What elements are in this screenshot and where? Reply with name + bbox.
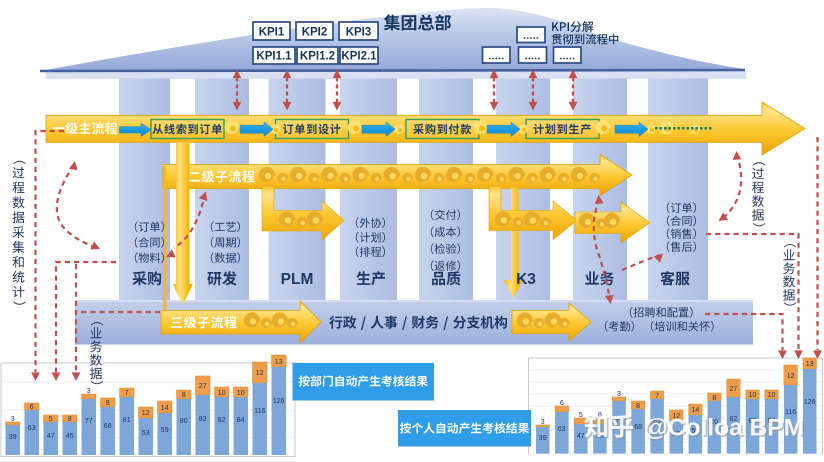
svg-text:14: 14 bbox=[161, 405, 169, 412]
svg-text:68: 68 bbox=[634, 424, 642, 431]
svg-text:KPI1.1: KPI1.1 bbox=[256, 51, 292, 63]
svg-text:KPI3: KPI3 bbox=[346, 27, 372, 39]
svg-text:8: 8 bbox=[712, 395, 716, 402]
svg-text:5: 5 bbox=[49, 416, 53, 423]
svg-text:13: 13 bbox=[806, 361, 814, 368]
svg-text:47: 47 bbox=[47, 433, 55, 440]
svg-text:10: 10 bbox=[218, 390, 226, 397]
svg-text:K3: K3 bbox=[516, 271, 536, 288]
svg-text:39: 39 bbox=[9, 434, 17, 441]
svg-text:KPI1: KPI1 bbox=[259, 27, 285, 39]
svg-text:80: 80 bbox=[180, 418, 188, 425]
svg-text:27: 27 bbox=[199, 383, 207, 390]
svg-text:12: 12 bbox=[787, 373, 795, 380]
svg-text:10: 10 bbox=[749, 392, 757, 399]
svg-text:77: 77 bbox=[85, 418, 93, 425]
svg-text:8: 8 bbox=[68, 416, 72, 423]
svg-text:10: 10 bbox=[237, 390, 245, 397]
svg-text:12: 12 bbox=[256, 370, 264, 377]
svg-text:6: 6 bbox=[560, 400, 564, 407]
svg-text:27: 27 bbox=[730, 386, 738, 393]
svg-text:47: 47 bbox=[577, 433, 585, 440]
svg-text:126: 126 bbox=[804, 399, 816, 406]
svg-text:KPI2: KPI2 bbox=[302, 27, 328, 39]
svg-text:KPI1.2: KPI1.2 bbox=[300, 51, 335, 63]
svg-text:45: 45 bbox=[66, 433, 74, 440]
svg-text:13: 13 bbox=[275, 359, 283, 366]
svg-text:63: 63 bbox=[28, 425, 36, 432]
svg-text:8: 8 bbox=[106, 400, 110, 407]
svg-text:6: 6 bbox=[30, 404, 34, 411]
svg-text:7: 7 bbox=[655, 393, 659, 400]
svg-text:14: 14 bbox=[691, 407, 699, 414]
svg-text:59: 59 bbox=[161, 427, 169, 434]
svg-text:3: 3 bbox=[617, 391, 621, 398]
svg-text:8: 8 bbox=[636, 403, 640, 410]
svg-text:@Colloa BPM: @Colloa BPM bbox=[644, 415, 804, 442]
svg-text:53: 53 bbox=[142, 430, 150, 437]
svg-text:5: 5 bbox=[579, 412, 583, 419]
svg-text:116: 116 bbox=[254, 408, 265, 415]
svg-text:84: 84 bbox=[237, 417, 245, 424]
svg-text:3: 3 bbox=[87, 388, 91, 395]
svg-text:126: 126 bbox=[273, 398, 285, 405]
svg-text:39: 39 bbox=[539, 435, 547, 442]
svg-text:3: 3 bbox=[11, 416, 15, 423]
svg-text:7: 7 bbox=[125, 390, 129, 397]
svg-text:82: 82 bbox=[218, 417, 226, 424]
svg-text:82: 82 bbox=[199, 416, 207, 423]
svg-text:81: 81 bbox=[123, 417, 131, 424]
svg-text:8: 8 bbox=[182, 392, 186, 399]
svg-text:12: 12 bbox=[142, 410, 150, 417]
svg-text:KPI2.1: KPI2.1 bbox=[341, 51, 377, 63]
svg-text:3: 3 bbox=[541, 419, 545, 426]
svg-text:63: 63 bbox=[558, 426, 566, 433]
svg-text:10: 10 bbox=[768, 392, 776, 399]
svg-text:68: 68 bbox=[104, 423, 112, 430]
svg-text:PLM: PLM bbox=[281, 271, 314, 288]
